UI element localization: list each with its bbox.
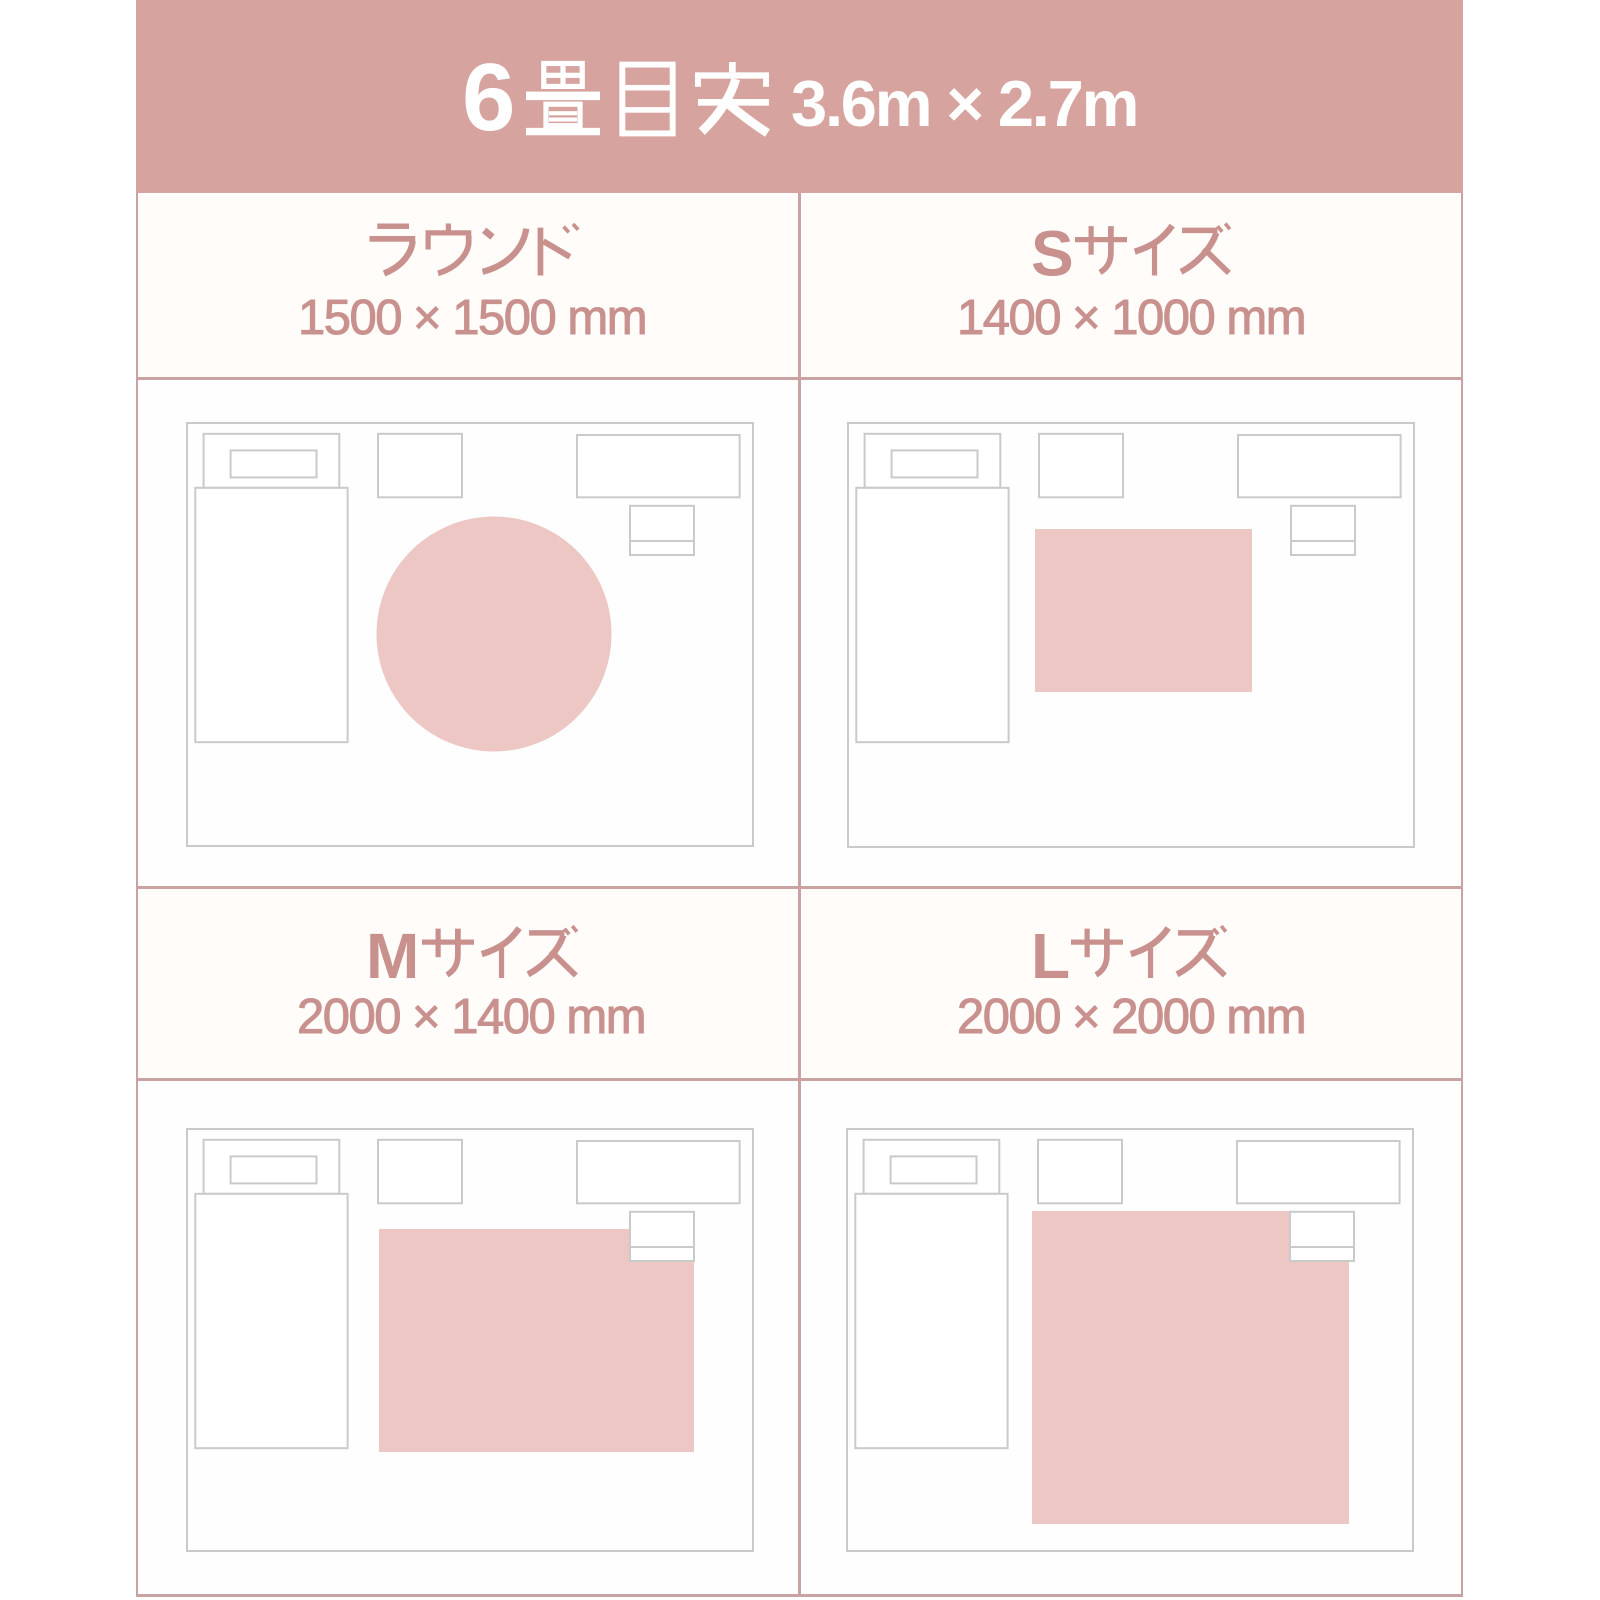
- svg-text:S: S: [1031, 218, 1074, 290]
- svg-text:3.6m × 2.7m: 3.6m × 2.7m: [791, 67, 1137, 140]
- svg-text:L: L: [1031, 920, 1070, 992]
- svg-text:6: 6: [462, 44, 515, 151]
- svg-text:M: M: [366, 920, 419, 992]
